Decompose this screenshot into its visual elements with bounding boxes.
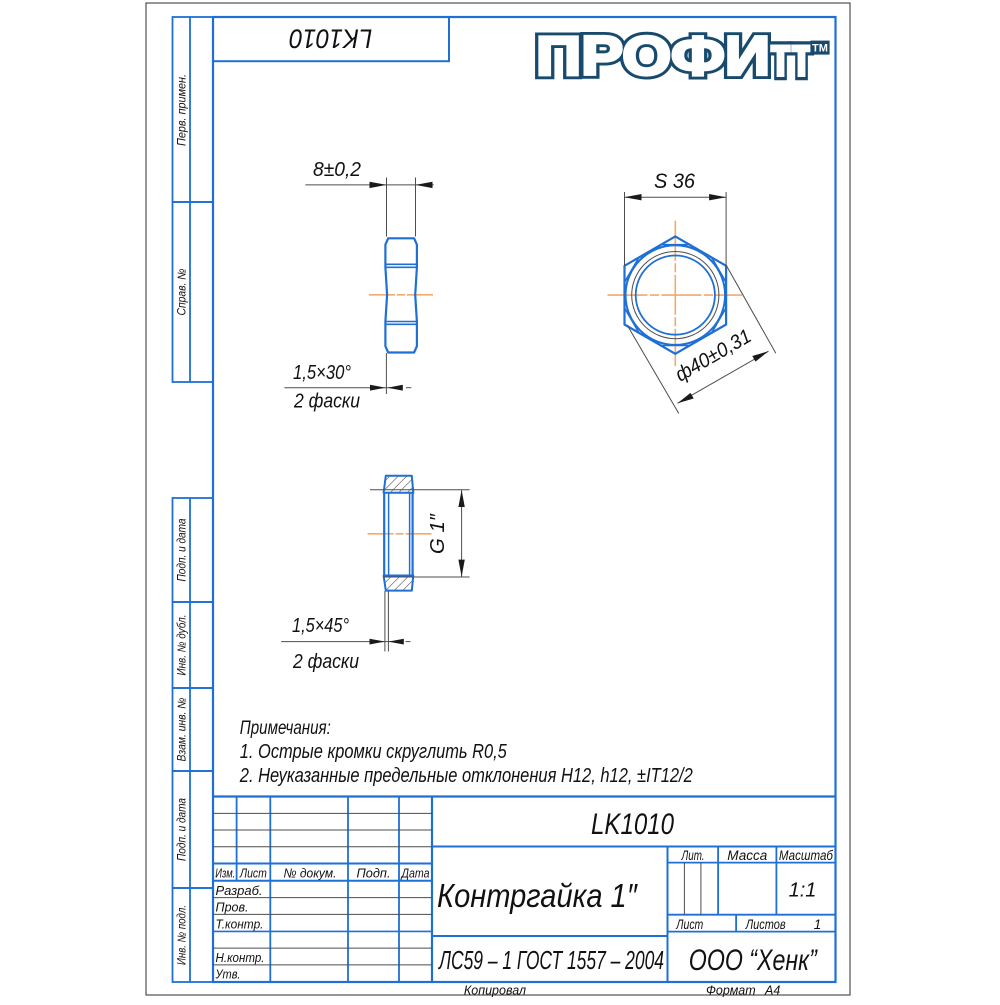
svg-text:8±0,2: 8±0,2 [313,159,361,181]
svg-text:Листов: Листов [745,917,786,932]
svg-text:2 фаски: 2 фаски [292,651,359,673]
svg-text:1,5×45°: 1,5×45° [292,615,349,637]
svg-text:А4: А4 [764,984,780,998]
svg-text:TM: TM [812,42,828,54]
svg-text:Лист: Лист [676,917,704,932]
svg-text:Контргайка 1″: Контргайка 1″ [437,877,638,914]
svg-text:Разраб.: Разраб. [216,883,263,898]
svg-text:Пров.: Пров. [216,900,249,915]
svg-text:Масса: Масса [727,848,767,863]
svg-text:Лит.: Лит. [681,848,705,863]
svg-text:Инв. № подл.: Инв. № подл. [177,905,189,965]
svg-text:ООО “Хенк”: ООО “Хенк” [689,944,819,977]
svg-text:Взам. инв. №: Взам. инв. № [177,697,189,761]
svg-text:№ докум.: № докум. [284,866,337,881]
svg-text:Утв.: Утв. [215,967,241,982]
svg-text:LK1010: LK1010 [591,808,674,841]
svg-text:Н.контр.: Н.контр. [216,950,265,965]
svg-text:LK1010: LK1010 [289,24,372,54]
svg-text:1,5×30°: 1,5×30° [293,362,351,384]
svg-text:Изм.: Изм. [215,866,235,881]
svg-text:Т.контр.: Т.контр. [216,916,264,931]
svg-text:тт: тт [770,25,812,89]
svg-text:Лист: Лист [239,866,267,881]
svg-text:Подп. и дата: Подп. и дата [177,519,189,582]
svg-text:S 36: S 36 [654,170,695,193]
svg-text:Формат: Формат [706,984,756,998]
svg-text:G 1″: G 1″ [427,513,449,554]
svg-text:2 фаски: 2 фаски [293,391,360,413]
svg-text:1. Острые кромки скруглить R0,: 1. Острые кромки скруглить R0,5 [240,741,508,763]
svg-text:1:1: 1:1 [789,880,817,902]
svg-text:2. Неуказанные предельные откл: 2. Неуказанные предельные отклонения Н12… [239,765,693,787]
svg-text:Подп. и дата: Подп. и дата [177,798,189,861]
svg-text:Перв. примен.: Перв. примен. [177,74,189,146]
svg-text:Справ. №: Справ. № [177,268,189,315]
svg-text:Дата: Дата [400,866,430,881]
svg-text:ЛС59 – 1 ГОСТ 1557 – 2004: ЛС59 – 1 ГОСТ 1557 – 2004 [438,945,664,975]
svg-text:ПРОФИ: ПРОФИ [536,25,770,87]
svg-text:Подп.: Подп. [357,866,391,881]
svg-text:Инв. № дубл.: Инв. № дубл. [177,615,189,676]
svg-text:Масштаб: Масштаб [779,848,833,863]
svg-text:Примечания:: Примечания: [240,718,331,739]
svg-text:Копировал: Копировал [464,984,526,998]
svg-text:1: 1 [814,917,822,932]
